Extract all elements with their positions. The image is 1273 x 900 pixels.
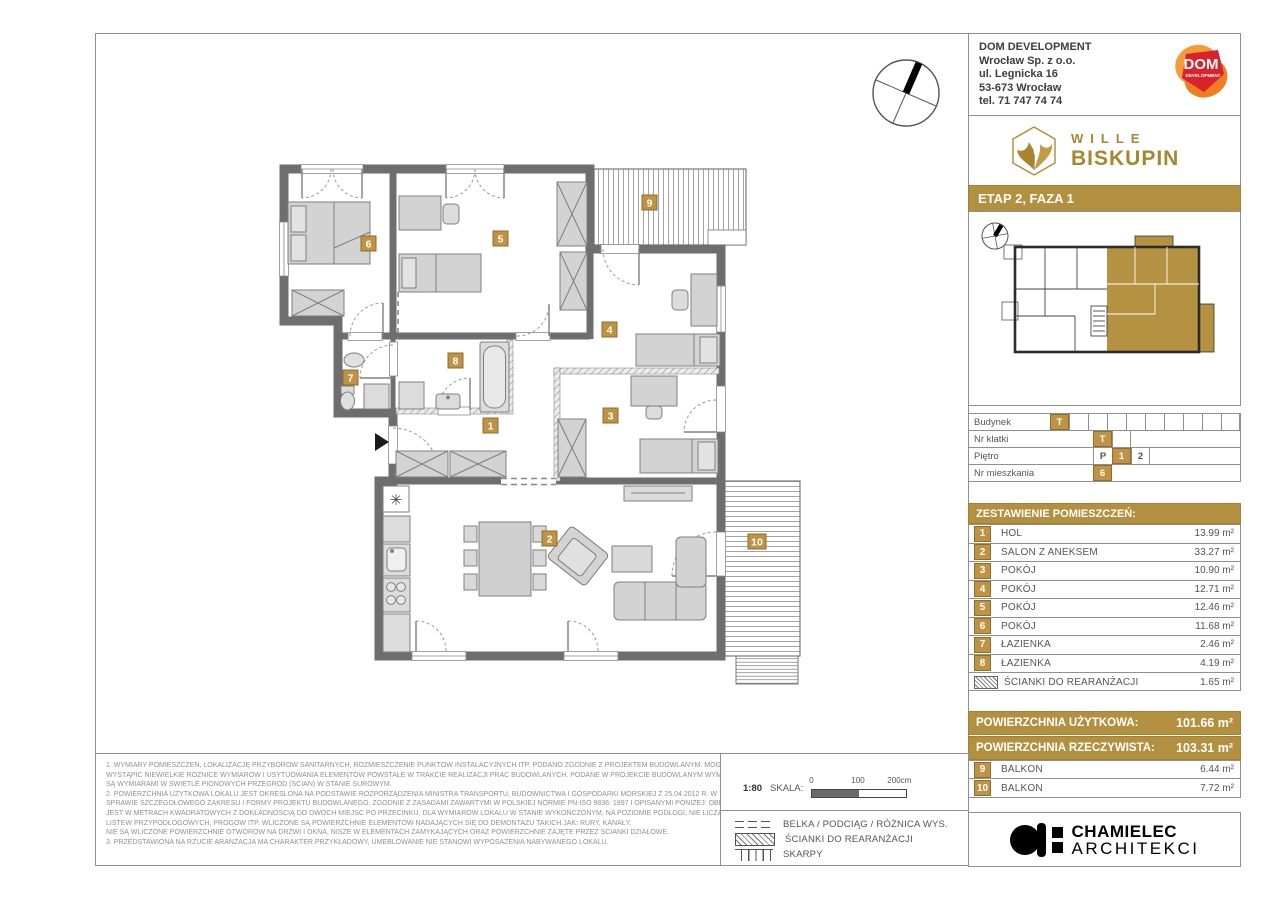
room-row-8: 8ŁAZIENKA4.19 m² <box>969 655 1240 674</box>
dom-development-logo: DOM DEVELOPMENT <box>1170 40 1232 102</box>
company-phone: tel. 71 747 74 74 <box>979 95 1091 109</box>
room-name: POKÓJ <box>1001 584 1195 595</box>
badge-10: 10 <box>748 534 766 549</box>
company-name: DOM DEVELOPMENT <box>979 41 1091 55</box>
svg-text:3: 3 <box>608 411 614 423</box>
unit-row-budynek: Budynek T <box>969 414 1240 431</box>
svg-text:4: 4 <box>607 325 613 337</box>
usable-area-value: 101.66 m² <box>1176 716 1233 730</box>
room-number-badge: 7 <box>974 637 991 653</box>
room-number-badge: 2 <box>974 544 991 560</box>
svg-text:1: 1 <box>488 421 494 433</box>
room-name: ŁAZIENKA <box>1001 658 1200 669</box>
svg-text:10: 10 <box>751 537 763 549</box>
cell-staircase: T <box>1093 431 1112 447</box>
room-area: 10.90 m² <box>1195 565 1234 576</box>
unit-info-table: Budynek T Nr klatki T Piętro P 1 2 Nr mi… <box>968 413 1241 482</box>
room-row-4: 4POKÓJ12.71 m² <box>969 581 1240 600</box>
unit-row-klatka: Nr klatki T <box>969 431 1240 448</box>
room3-wardrobe <box>558 419 586 477</box>
room-number-badge: 3 <box>974 563 991 579</box>
scale-label: SKALA: <box>770 783 803 794</box>
actual-area-label: POWIERZCHNIA RZECZYWISTA: <box>976 742 1155 754</box>
room-number-badge: 8 <box>974 655 991 671</box>
room6-bed <box>288 202 370 264</box>
room-number-badge: 6 <box>974 618 991 634</box>
company-address-3: 53-673 Wrocław <box>979 82 1091 96</box>
row-label: Nr klatki <box>969 431 1093 447</box>
room-name: POKÓJ <box>1001 565 1195 576</box>
svg-text:8: 8 <box>453 356 459 368</box>
unit-row-mieszkanie: Nr mieszkania 6 <box>969 465 1240 482</box>
hall-wardrobes <box>396 451 506 477</box>
disclaimer-line: NIE SĄ WLICZONE POWIERZCHNIE OTWORÓW NA … <box>106 828 720 838</box>
hatch-swatch-icon <box>735 833 775 846</box>
entrance-arrow-icon <box>375 433 389 451</box>
room-name: ŚCIANKI DO REARANŻACJI <box>1004 677 1200 688</box>
dashed-line-swatch-icon <box>735 819 773 830</box>
scale-bar: 0 100 200cm <box>811 776 907 800</box>
room-number-badge: 4 <box>974 581 991 597</box>
cell-floor-1: 1 <box>1112 448 1131 464</box>
room-name: POKÓJ <box>1001 621 1195 632</box>
svg-text:2: 2 <box>547 534 553 546</box>
rooms-list-header: ZESTAWIENIE POMIESZCZEŃ: <box>968 503 1241 524</box>
apartment-floorplan: ✳ 1 2 3 4 5 6 7 8 9 10 <box>96 34 968 753</box>
room5-bed <box>399 254 481 292</box>
balcony-area: 7.72 m² <box>1200 783 1234 794</box>
room5-wardrobes <box>557 182 587 310</box>
room-name: ŁAZIENKA <box>1001 639 1200 650</box>
building-overview-minimap <box>968 211 1241 406</box>
cell-apartment-number: 6 <box>1093 465 1112 481</box>
stage-banner: ETAP 2, FAZA 1 <box>968 185 1241 212</box>
room-row-3: 3POKÓJ10.90 m² <box>969 562 1240 581</box>
svg-text:9: 9 <box>647 198 653 210</box>
svg-text:5: 5 <box>498 234 504 246</box>
legend-row-belka: BELKA / PODCIĄG / RÓŻNICA WYS. <box>735 817 968 832</box>
badge-2: 2 <box>542 531 557 546</box>
actual-area-banner: POWIERZCHNIA RZECZYWISTA: 103.31 m² <box>968 736 1241 760</box>
balcony-number-badge: 10 <box>974 780 991 796</box>
badge-7: 7 <box>343 370 358 385</box>
balcony-row-9: 9BALKON6.44 m² <box>969 761 1240 779</box>
disclaimer-line: 3. PRZEDSTAWIONA NA RZUCIE ARANŻACJA MA … <box>106 838 720 848</box>
svg-text:DEVELOPMENT: DEVELOPMENT <box>1186 73 1221 78</box>
badge-5: 5 <box>493 231 508 246</box>
badge-1: 1 <box>483 418 498 433</box>
balcony-number-badge: 9 <box>974 762 991 778</box>
room-row-6: 6POKÓJ11.68 m² <box>969 618 1240 637</box>
badge-8: 8 <box>448 353 463 368</box>
room-area: 2.46 m² <box>1200 639 1234 650</box>
legend-row-scianki: ŚCIANKI DO REARANŻACJI <box>735 832 968 847</box>
brand-name-line2: BISKUPIN <box>1071 147 1179 171</box>
scale-tick-100: 100 <box>851 776 864 785</box>
scale-tick-0: 0 <box>809 776 813 785</box>
floorplan-drawing-area: ✳ 1 2 3 4 5 6 7 8 9 10 <box>95 33 969 754</box>
usable-area-label: POWIERZCHNIA UŻYTKOWA: <box>976 717 1138 729</box>
legend-row-skarpy: SKARPY <box>735 847 968 862</box>
disclaimer-line: 2. POWIERZCHNIA UŻYTKOWA LOKALU JEST OKR… <box>106 790 720 800</box>
disclaimer-line: 1. WYMIARY POMIESZCZEŃ, LOKALIZACJĘ PRZY… <box>106 761 720 771</box>
floorplan-sheet: { "company": { "name": "DOM DEVELOPMENT"… <box>0 0 1273 900</box>
badge-6: 6 <box>361 236 376 251</box>
brand-box: WILLE BISKUPIN <box>968 115 1241 186</box>
actual-area-value: 103.31 m² <box>1176 741 1233 755</box>
company-address-1: Wrocław Sp. z o.o. <box>979 55 1091 69</box>
room-number-badge: 5 <box>974 600 991 616</box>
rooms-list: 1HOL13.99 m² 2SALON Z ANEKSEM33.27 m² 3P… <box>968 524 1241 691</box>
room-name: POKÓJ <box>1001 602 1195 613</box>
disclaimer-line: LISTEW PRZYPODŁOGOWYCH, PROGÓW ITP. WLIC… <box>106 819 720 829</box>
balcony-9 <box>594 169 746 245</box>
disclaimer-line: JEST W METRACH KWADRATOWYCH Z DOKŁADNOŚC… <box>106 809 720 819</box>
room-row-5: 5POKÓJ12.46 m² <box>969 599 1240 618</box>
room-area: 12.46 m² <box>1195 602 1234 613</box>
cell-floor-p: P <box>1093 448 1112 464</box>
room-area: 1.65 m² <box>1200 677 1234 688</box>
balcony-list: 9BALKON6.44 m² 10BALKON7.72 m² <box>968 760 1241 798</box>
developer-info-box: DOM DEVELOPMENT Wrocław Sp. z o.o. ul. L… <box>968 33 1241 116</box>
room-name: SALON Z ANEKSEM <box>1001 547 1195 558</box>
comb-swatch-icon <box>735 849 773 861</box>
room-row-2: 2SALON Z ANEKSEM33.27 m² <box>969 544 1240 563</box>
brand-name-line1: WILLE <box>1071 131 1179 146</box>
balcony-row-10: 10BALKON7.72 m² <box>969 779 1240 797</box>
dining-table-set <box>464 522 546 596</box>
svg-text:6: 6 <box>366 239 372 251</box>
disclaimer-line: WYSTĄPIĆ NIEWIELKIE RÓŻNICE WYMIARÓW I U… <box>106 771 720 781</box>
balcony-name: BALKON <box>1001 783 1200 794</box>
cell-floor-2: 2 <box>1131 448 1150 464</box>
disclaimer-line: SĄ WYMIARAMI W ŚWIETLE PIONOWYCH PRZEGRÓ… <box>106 780 720 790</box>
badge-9: 9 <box>642 195 657 210</box>
scale-box: 1:80 SKALA: 0 100 200cm <box>720 753 969 811</box>
balcony-10 <box>718 481 800 684</box>
room6-wardrobe <box>292 290 344 316</box>
architect-logo-box: CHAMIELEC ARCHITEKCI <box>968 812 1241 867</box>
room3-bed <box>640 439 718 473</box>
wille-biskupin-leaf-logo <box>1007 124 1061 178</box>
cell-building: T <box>1050 414 1069 430</box>
north-compass-icon <box>873 60 939 126</box>
rearrangement-row: ŚCIANKI DO REARANŻACJI1.65 m² <box>969 673 1240 692</box>
room-area: 13.99 m² <box>1195 528 1234 539</box>
unit-row-pietro: Piętro P 1 2 <box>969 448 1240 465</box>
company-address-2: ul. Legnicka 16 <box>979 68 1091 82</box>
room4-bed <box>636 334 720 366</box>
room-area: 4.19 m² <box>1200 658 1234 669</box>
room-area: 33.27 m² <box>1195 547 1234 558</box>
row-label: Piętro <box>969 448 1093 464</box>
room-row-7: 7ŁAZIENKA2.46 m² <box>969 636 1240 655</box>
legend-label: SKARPY <box>783 849 823 860</box>
disclaimer-line: SPRAWIE SZCZEGÓŁOWEGO ZAKRESU I FORMY PR… <box>106 799 720 809</box>
scale-ratio: 1:80 <box>743 783 762 794</box>
coffee-table <box>612 546 652 572</box>
architect-name: CHAMIELEC <box>1072 823 1200 840</box>
usable-area-banner: POWIERZCHNIA UŻYTKOWA: 101.66 m² <box>968 711 1241 735</box>
row-label: Budynek <box>969 414 1050 430</box>
badge-3: 3 <box>603 408 618 423</box>
svg-text:DOM: DOM <box>1184 56 1219 73</box>
badge-4: 4 <box>602 322 617 337</box>
legend-label: ŚCIANKI DO REARANŻACJI <box>785 834 913 845</box>
balcony-name: BALKON <box>1001 764 1200 775</box>
row-label: Nr mieszkania <box>969 465 1093 482</box>
minimap-building <box>1002 236 1214 352</box>
legal-disclaimer: 1. WYMIARY POMIESZCZEŃ, LOKALIZACJĘ PRZY… <box>95 753 721 866</box>
scale-tick-200: 200cm <box>887 776 911 785</box>
room-number-badge: 1 <box>974 526 991 542</box>
room-area: 12.71 m² <box>1195 584 1234 595</box>
kitchen-units <box>383 486 410 652</box>
legend-label: BELKA / PODCIĄG / RÓŻNICA WYS. <box>783 819 948 830</box>
balcony-area: 6.44 m² <box>1200 764 1234 775</box>
svg-text:7: 7 <box>348 373 354 385</box>
tv-cabinet <box>624 486 692 501</box>
room-area: 11.68 m² <box>1195 621 1234 632</box>
architect-subname: ARCHITEKCI <box>1072 840 1200 857</box>
vent-symbol: ✳ <box>390 492 403 509</box>
room-row-1: 1HOL13.99 m² <box>969 525 1240 544</box>
legend-box: BELKA / PODCIĄG / RÓŻNICA WYS. ŚCIANKI D… <box>720 810 969 866</box>
chamielec-logo-icon <box>1010 825 1063 855</box>
hatch-swatch-icon <box>974 676 998 689</box>
room-name: HOL <box>1001 528 1195 539</box>
